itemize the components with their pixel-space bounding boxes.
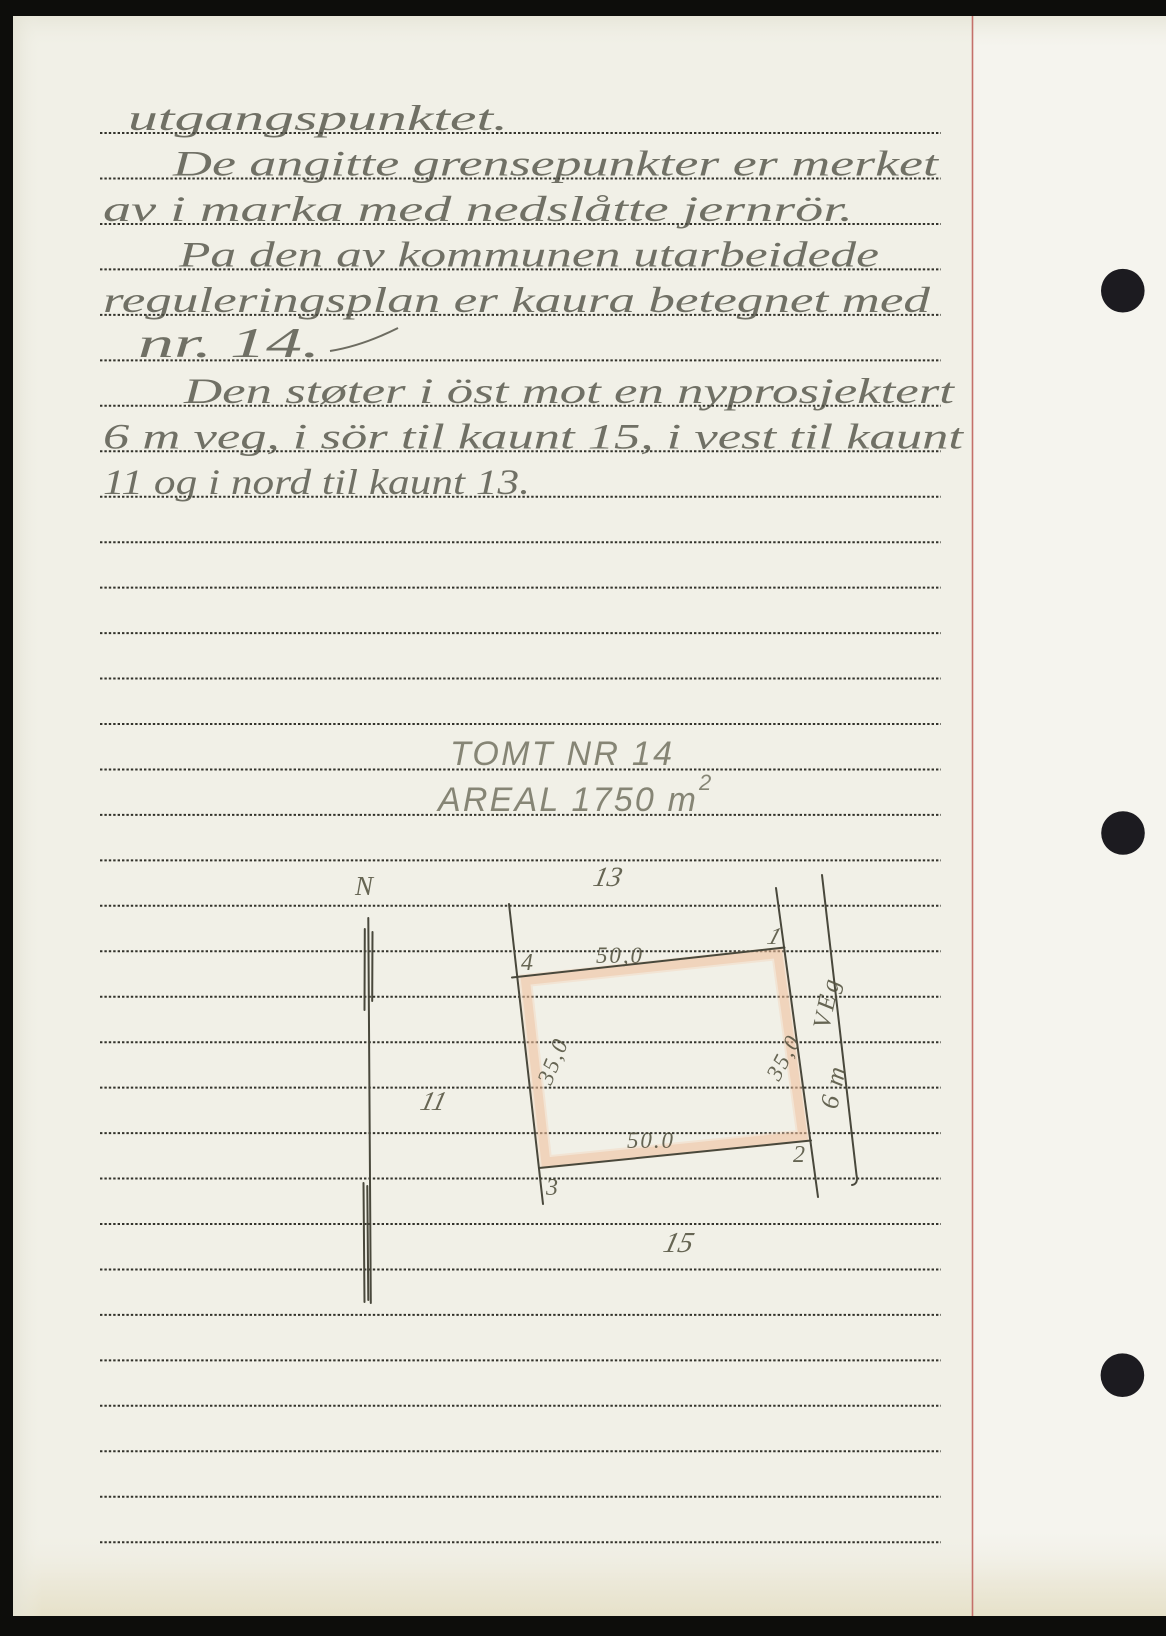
svg-text:2: 2 (698, 770, 711, 795)
svg-text:50,0: 50,0 (596, 943, 643, 968)
svg-text:2: 2 (793, 1142, 805, 1168)
svg-text:3: 3 (545, 1175, 558, 1201)
svg-text:6 m veg, i sör til kaunt 15, i: 6 m veg, i sör til kaunt 15, i vest til … (103, 417, 964, 457)
svg-text:utgangspunktet.: utgangspunktet. (128, 98, 508, 138)
svg-text:4: 4 (521, 950, 533, 976)
svg-text:Den støter i öst mot en nypros: Den støter i öst mot en nyprosjektert (183, 371, 956, 411)
svg-text:AREAL 1750 m: AREAL 1750 m (436, 781, 696, 819)
svg-text:reguleringsplan er kaura beteg: reguleringsplan er kaura betegnet med (103, 280, 931, 320)
svg-text:50.0: 50.0 (627, 1128, 674, 1153)
svg-text:11 og i nord til kaunt 13.: 11 og i nord til kaunt 13. (103, 462, 530, 502)
svg-text:Pa den av kommunen utarbeidede: Pa den av kommunen utarbeidede (178, 235, 879, 275)
svg-text:N: N (354, 871, 375, 901)
svg-text:av i marka med nedslåtte jernr: av i marka med nedslåtte jernrör. (103, 189, 853, 229)
svg-text:nr. 14.: nr. 14. (138, 321, 320, 367)
svg-text:De angitte grensepunkter er me: De angitte grensepunkter er merket (172, 144, 940, 184)
svg-text:TOMT NR 14: TOMT NR 14 (450, 735, 672, 773)
